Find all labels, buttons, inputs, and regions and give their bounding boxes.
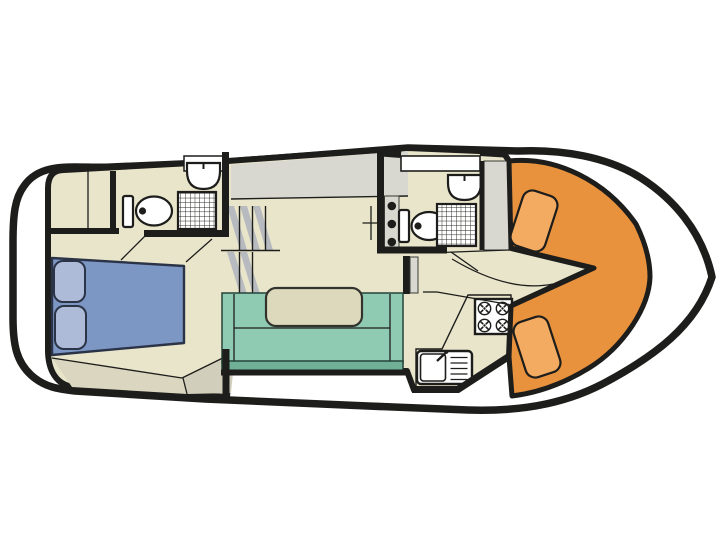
toilet-tank: [399, 210, 409, 242]
shower: [437, 204, 476, 246]
hinge-dot: [388, 220, 397, 229]
wall: [381, 153, 401, 155]
wardrobe-cabinet: [484, 161, 509, 250]
dinette-table: [266, 288, 362, 326]
faucet-dot: [445, 350, 449, 354]
aft-cabin-bed: [52, 258, 184, 355]
bulkhead-cabinet: [410, 257, 418, 293]
pillow: [54, 261, 85, 302]
pillow: [55, 306, 86, 349]
roof-hatch-window: [401, 156, 480, 171]
toilet-flush-icon: [139, 207, 146, 214]
hinge-dot: [388, 238, 397, 247]
hinge-dot: [388, 202, 397, 211]
shower: [178, 192, 216, 229]
boat-floor-plan-diagram: [0, 0, 720, 540]
toilet-tank: [123, 196, 133, 227]
bulkhead-wall: [403, 256, 410, 294]
toilet-flush-icon: [414, 222, 421, 229]
saloon-dinette: [222, 288, 403, 374]
wall: [480, 153, 504, 155]
boat-floor-plan-page: [0, 0, 720, 540]
